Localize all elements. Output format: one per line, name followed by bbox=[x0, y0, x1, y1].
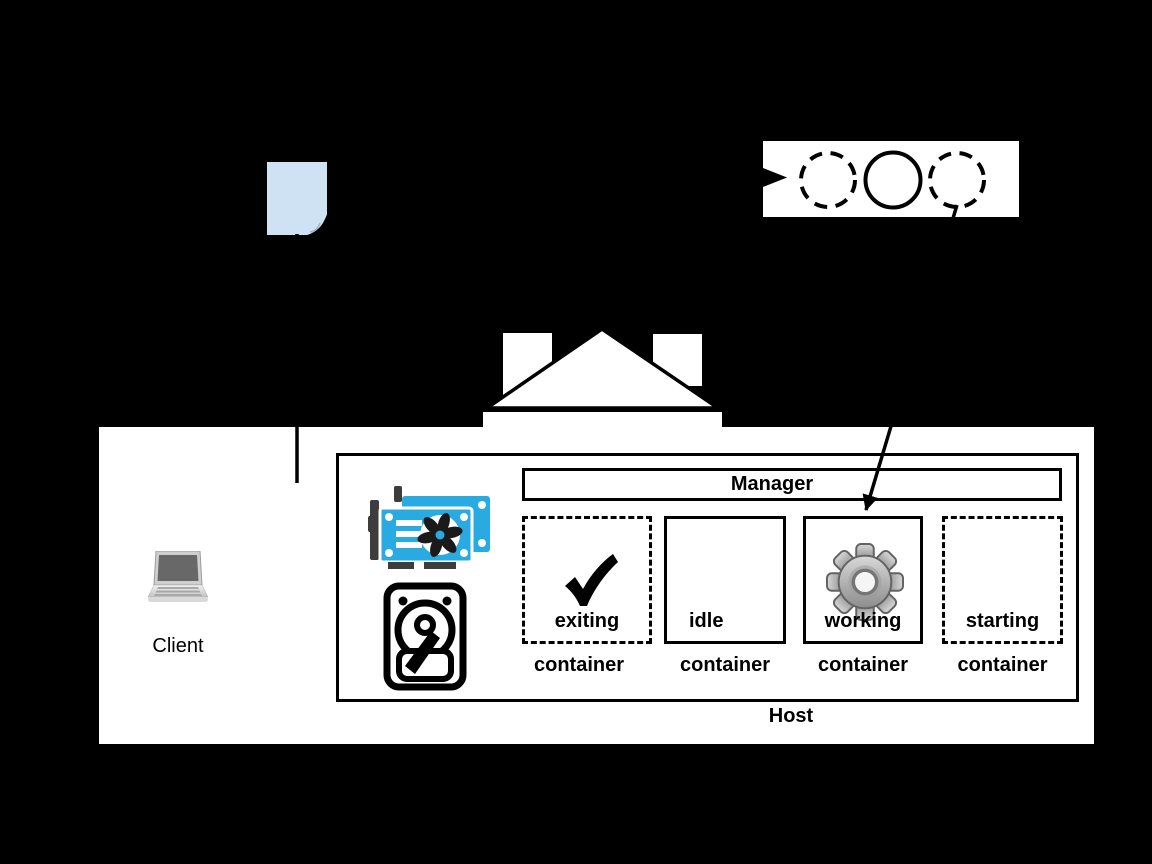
container-state-starting: starting bbox=[945, 610, 1060, 633]
container-caption-2: container bbox=[664, 654, 786, 678]
container-caption-3: container bbox=[803, 654, 923, 678]
container-box-idle: idle bbox=[664, 516, 786, 644]
check-icon bbox=[561, 553, 619, 607]
manager-bar: Manager bbox=[522, 468, 1062, 501]
host-label: Host bbox=[731, 705, 851, 729]
pediment-base-bar bbox=[483, 412, 722, 427]
container-box-exiting: exiting bbox=[522, 516, 652, 644]
container-caption-1: container bbox=[514, 654, 644, 678]
container-caption-4: container bbox=[942, 654, 1063, 678]
container-box-working: working bbox=[803, 516, 923, 644]
state-circle-dashed-left bbox=[801, 153, 855, 207]
container-state-idle: idle bbox=[667, 610, 783, 633]
client-label: Client bbox=[118, 635, 238, 659]
folded-corner-icon bbox=[303, 210, 329, 236]
hdd-icon bbox=[382, 581, 468, 692]
container-state-working: working bbox=[806, 610, 920, 633]
arrow-in-icon bbox=[763, 168, 787, 187]
state-circle-dashed-right bbox=[930, 153, 984, 207]
diagram-canvas: Client bbox=[0, 0, 1152, 864]
state-circle-solid bbox=[866, 153, 921, 208]
container-state-exiting: exiting bbox=[525, 610, 649, 633]
manager-label: Manager bbox=[731, 471, 813, 498]
laptop-icon bbox=[148, 551, 208, 603]
gpu-icon bbox=[368, 486, 492, 570]
document-icon bbox=[267, 162, 327, 235]
state-diagram-box bbox=[763, 141, 1019, 217]
container-box-starting: starting bbox=[942, 516, 1063, 644]
pediment-roof-icon bbox=[481, 324, 724, 412]
